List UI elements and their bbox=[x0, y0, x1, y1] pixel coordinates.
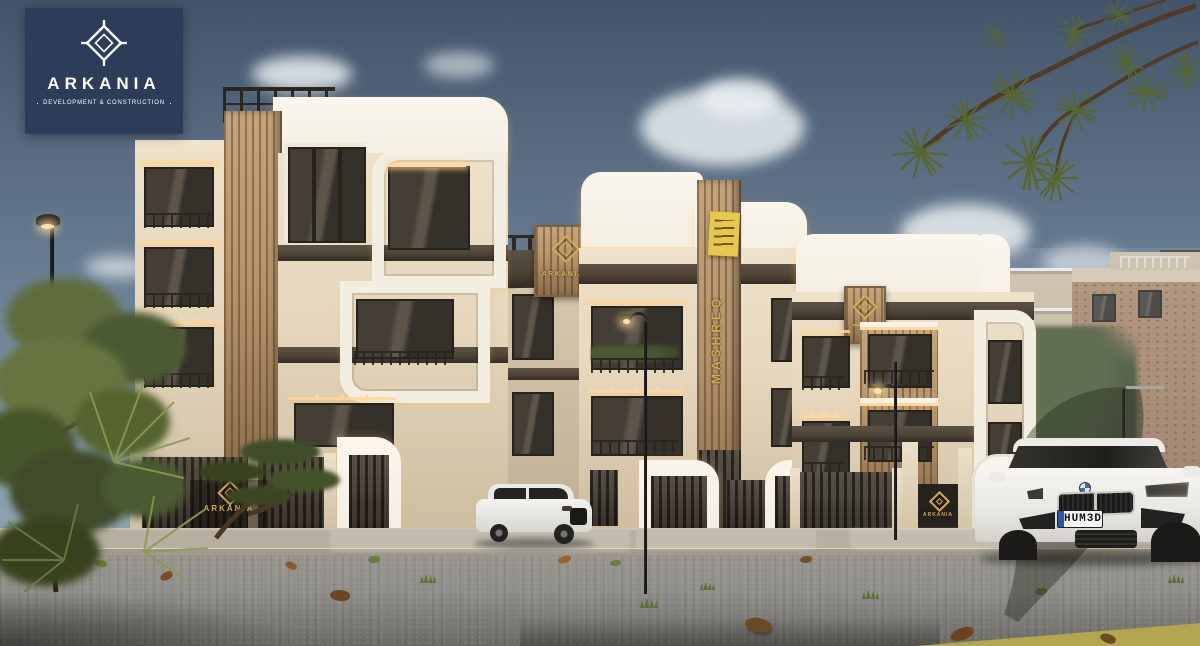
white-frame bbox=[372, 148, 506, 288]
sedan: HUM3D bbox=[975, 438, 1200, 568]
far-lamp-arm bbox=[1126, 386, 1164, 389]
cloud bbox=[424, 52, 494, 78]
logo-card: ARKANIA DEVELOPMENT & CONSTRUCTION bbox=[25, 8, 183, 134]
logo-title: ARKANIA bbox=[25, 74, 183, 94]
balcony-soffit bbox=[288, 391, 396, 400]
back-window bbox=[512, 294, 554, 360]
balcony-soffit bbox=[587, 294, 683, 303]
balcony-rail bbox=[144, 213, 210, 228]
leaf bbox=[800, 556, 812, 563]
lamp-glow bbox=[874, 388, 882, 394]
lamp-glow bbox=[623, 319, 630, 324]
suv-grille bbox=[570, 508, 587, 525]
arkania-logo-icon bbox=[81, 20, 127, 66]
balcony-soffit bbox=[860, 322, 938, 330]
suv-headlight bbox=[562, 506, 572, 511]
banner-script-marks bbox=[713, 219, 734, 248]
center-building: MASHREQ bbox=[575, 168, 812, 540]
tall-window bbox=[288, 147, 366, 243]
balcony-rail bbox=[864, 446, 934, 460]
road-vignette bbox=[0, 590, 300, 646]
balcony-rail bbox=[591, 358, 679, 373]
balcony-rail bbox=[864, 370, 934, 384]
balcony-soffit bbox=[860, 398, 938, 406]
crown bbox=[796, 234, 996, 300]
window bbox=[356, 299, 454, 359]
leaf bbox=[610, 560, 621, 566]
architectural-render-scene: ARKANIA MASHREQ bbox=[0, 0, 1200, 646]
balcony-rail bbox=[354, 351, 452, 365]
balcony-soffit bbox=[138, 155, 222, 164]
suv-wheel bbox=[490, 524, 508, 542]
street-lamp-pole bbox=[644, 322, 647, 594]
balcony-rail bbox=[591, 440, 679, 455]
lamp-glow bbox=[41, 224, 54, 229]
slab-band bbox=[792, 426, 974, 442]
fence bbox=[727, 480, 767, 530]
leaf bbox=[368, 556, 380, 563]
road-vignette bbox=[520, 616, 940, 646]
arkania-diamond-icon bbox=[929, 491, 950, 512]
arkania-diamond-icon bbox=[852, 294, 877, 319]
balcony-soffit bbox=[587, 384, 683, 393]
logo-subtitle: DEVELOPMENT & CONSTRUCTION bbox=[37, 100, 171, 106]
sedan-mirror bbox=[989, 472, 1006, 482]
slab-band bbox=[579, 264, 807, 284]
gate-right-label: ARKANIA bbox=[919, 512, 957, 518]
balcony-soffit bbox=[138, 235, 222, 244]
portal-arch bbox=[337, 437, 401, 533]
lower-intake bbox=[1075, 530, 1137, 548]
suv bbox=[474, 484, 594, 550]
wheel-arch bbox=[999, 530, 1037, 560]
bonsai-pine bbox=[188, 418, 344, 540]
arabic-banner bbox=[708, 211, 740, 257]
fence bbox=[590, 470, 618, 526]
led-strip bbox=[388, 164, 466, 167]
wheel-arch bbox=[1151, 522, 1200, 562]
sedan-mirror bbox=[1183, 466, 1200, 477]
portal-gate bbox=[651, 476, 707, 534]
window bbox=[388, 166, 470, 250]
cloud bbox=[700, 78, 780, 118]
balcony-soffit bbox=[798, 410, 850, 418]
balcony-soffit bbox=[798, 325, 850, 333]
plate-number: HUM3D bbox=[1064, 513, 1102, 525]
white-frame bbox=[340, 281, 490, 403]
pine-branches bbox=[826, 0, 1200, 218]
tower-sign-label: MASHREQ bbox=[709, 264, 731, 414]
back-window bbox=[512, 392, 554, 456]
portal-gate bbox=[349, 455, 389, 533]
driveway-apron bbox=[636, 530, 816, 550]
balcony-rail bbox=[802, 376, 846, 390]
crown-left bbox=[581, 172, 703, 250]
suv-wheel bbox=[554, 524, 574, 544]
portal-arch bbox=[639, 460, 719, 534]
license-plate: HUM3D bbox=[1057, 510, 1103, 528]
